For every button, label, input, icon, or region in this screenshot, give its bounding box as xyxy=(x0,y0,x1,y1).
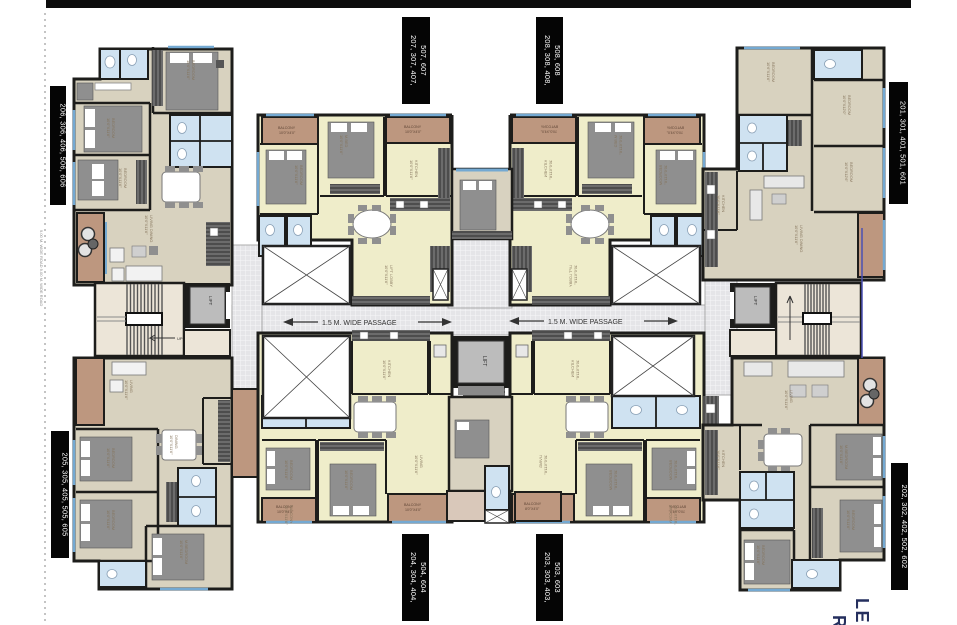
svg-text:1.5 M. WIDE PASSAGE: 1.5 M. WIDE PASSAGE xyxy=(548,319,623,326)
svg-text:UP: UP xyxy=(177,336,183,341)
svg-text:LE: LE xyxy=(852,598,872,624)
svg-text:9.00 M. WIDE ROAD 9.00 M. WIDE: 9.00 M. WIDE ROAD 9.00 M. WIDE ROAD xyxy=(39,230,44,306)
svg-text:10'0"X11'6": 10'0"X11'6" xyxy=(284,505,289,525)
svg-text:10'0"X11'6": 10'0"X11'6" xyxy=(294,165,299,185)
svg-text:BALCONY: BALCONY xyxy=(278,126,296,130)
svg-text:10'0"X11'6": 10'0"X11'6" xyxy=(382,360,387,380)
svg-text:10'0"X11'6": 10'0"X11'6" xyxy=(409,160,414,180)
svg-text:10'0"X11'6": 10'0"X11'6" xyxy=(414,455,419,475)
svg-text:202, 302, 402, 502, 602: 202, 302, 402, 502, 602 xyxy=(900,485,909,569)
svg-text:10'0"X11'6": 10'0"X11'6" xyxy=(179,540,184,560)
svg-text:10'0"X11'6": 10'0"X11'6" xyxy=(284,460,289,480)
svg-text:BALCONY: BALCONY xyxy=(404,503,422,507)
svg-text:205, 305, 405, 505, 605: 205, 305, 405, 505, 605 xyxy=(61,453,70,537)
svg-text:10'0"X11'6": 10'0"X11'6" xyxy=(839,445,844,465)
svg-text:10'0"X11'6": 10'0"X11'6" xyxy=(106,448,111,468)
svg-text:10'0"X11'6": 10'0"X11'6" xyxy=(339,135,344,155)
svg-text:508, 608: 508, 608 xyxy=(553,45,562,76)
svg-text:10'0"X4'0": 10'0"X4'0" xyxy=(405,508,422,512)
svg-text:LIFT: LIFT xyxy=(208,296,213,306)
svg-text:10'0"X11'6": 10'0"X11'6" xyxy=(144,215,149,235)
svg-text:10'0"X4'0": 10'0"X4'0" xyxy=(405,130,422,134)
svg-text:201, 301, 401, 501, 601: 201, 301, 401, 501, 601 xyxy=(899,101,908,185)
svg-text:204, 304, 404,: 204, 304, 404, xyxy=(409,552,418,603)
svg-text:LIFT: LIFT xyxy=(753,296,758,306)
svg-text:10'0"X11'6": 10'0"X11'6" xyxy=(794,225,799,245)
svg-text:LIFT: LIFT xyxy=(481,356,487,366)
svg-text:10'0"X11'6": 10'0"X11'6" xyxy=(106,118,111,138)
svg-text:507, 607: 507, 607 xyxy=(419,45,428,76)
svg-text:206, 306, 406, 506, 606: 206, 306, 406, 506, 606 xyxy=(59,104,68,188)
svg-text:10'0"X12'6": 10'0"X12'6" xyxy=(844,162,849,182)
svg-text:10'0"X12'0": 10'0"X12'0" xyxy=(842,95,847,115)
svg-text:208, 308, 408,: 208, 308, 408, xyxy=(543,35,552,86)
svg-text:10'6"X11'6": 10'6"X11'6" xyxy=(766,62,771,82)
svg-text:8'0"X4'0": 8'0"X4'0" xyxy=(525,507,540,511)
svg-text:10'0"X11'6": 10'0"X11'6" xyxy=(756,545,761,565)
svg-text:504, 604: 504, 604 xyxy=(419,562,428,593)
svg-text:10'0"X11'6": 10'0"X11'6" xyxy=(169,435,174,455)
svg-text:10'0"X11'6": 10'0"X11'6" xyxy=(124,380,129,400)
svg-text:203, 303, 403,: 203, 303, 403, xyxy=(543,552,552,603)
svg-text:10'0"X11'6": 10'0"X11'6" xyxy=(784,390,789,410)
svg-text:10'0"X11'6": 10'0"X11'6" xyxy=(384,265,389,285)
svg-text:BALCONY: BALCONY xyxy=(524,502,542,506)
svg-text:503, 603: 503, 603 xyxy=(553,562,562,593)
svg-text:207, 307, 407,: 207, 307, 407, xyxy=(409,35,418,86)
svg-text:10'0"X11'6": 10'0"X11'6" xyxy=(186,60,191,80)
svg-text:1.5 M. WIDE PASSAGE: 1.5 M. WIDE PASSAGE xyxy=(322,320,397,327)
svg-text:BALCONY: BALCONY xyxy=(404,125,422,129)
svg-text:10'0"X11'6": 10'0"X11'6" xyxy=(716,195,721,215)
svg-text:10'0"X11'6": 10'0"X11'6" xyxy=(716,450,721,470)
svg-text:10'0"X11'6": 10'0"X11'6" xyxy=(106,510,111,530)
svg-text:10'0"X11'6": 10'0"X11'6" xyxy=(118,168,123,188)
svg-text:RE: RE xyxy=(829,615,849,625)
svg-text:10'0"X11'6": 10'0"X11'6" xyxy=(846,510,851,530)
svg-text:10'0"X4'0": 10'0"X4'0" xyxy=(279,131,296,135)
svg-text:10'0"X11'6": 10'0"X11'6" xyxy=(344,470,349,490)
